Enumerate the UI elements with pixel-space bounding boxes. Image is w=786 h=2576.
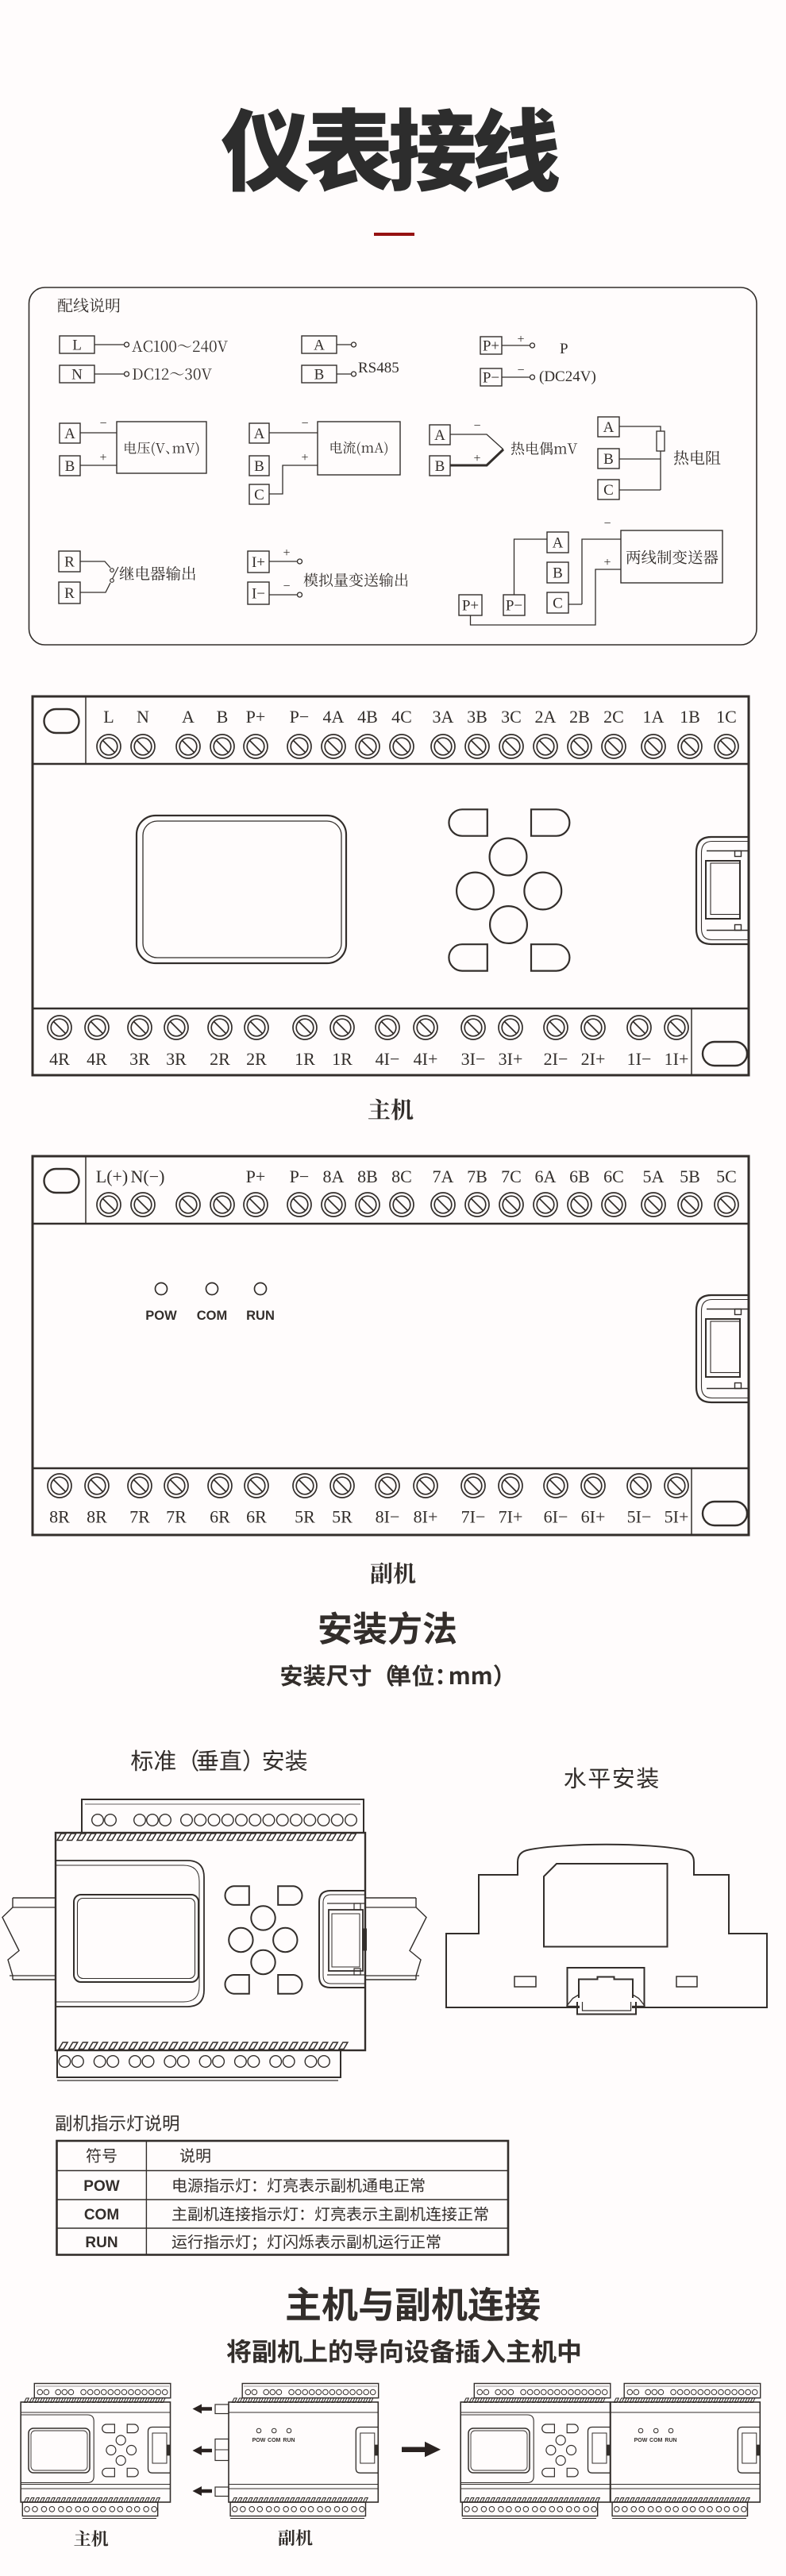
svg-text:A: A (434, 427, 445, 444)
svg-text:C: C (553, 596, 563, 612)
svg-text:7I−: 7I− (461, 1507, 486, 1527)
svg-text:2R: 2R (210, 1049, 230, 1069)
svg-text:COM: COM (268, 2438, 281, 2443)
svg-text:6C: 6C (603, 1167, 624, 1186)
svg-text:2C: 2C (603, 707, 624, 727)
svg-text:RUN: RUN (85, 2235, 118, 2251)
svg-text:+: + (283, 546, 290, 560)
svg-text:8A: 8A (323, 1167, 345, 1186)
svg-text:B: B (65, 458, 75, 475)
svg-text:+: + (99, 451, 106, 465)
svg-text:B: B (603, 451, 614, 468)
svg-text:(DC24V): (DC24V) (539, 368, 596, 385)
svg-text:4B: 4B (357, 707, 378, 727)
svg-text:C: C (254, 487, 264, 503)
svg-text:A: A (254, 426, 265, 442)
svg-text:P−: P− (506, 598, 522, 615)
svg-text:4R: 4R (87, 1049, 107, 1069)
svg-text:5R: 5R (332, 1507, 353, 1527)
svg-text:4C: 4C (391, 707, 412, 727)
svg-text:A: A (603, 419, 615, 436)
svg-text:A: A (182, 707, 195, 727)
svg-text:2I−: 2I− (544, 1049, 568, 1069)
svg-text:I−: I− (252, 586, 265, 603)
svg-text:3B: 3B (467, 707, 487, 727)
svg-text:POW: POW (83, 2178, 119, 2195)
svg-text:1A: 1A (643, 707, 665, 727)
svg-text:B: B (553, 565, 563, 582)
svg-text:−: − (99, 417, 106, 430)
svg-text:1I+: 1I+ (665, 1049, 689, 1069)
svg-text:−: − (517, 364, 524, 377)
svg-text:+: + (603, 556, 611, 569)
svg-text:3R: 3R (166, 1049, 187, 1069)
svg-text:6B: 6B (569, 1167, 590, 1186)
svg-text:5B: 5B (680, 1167, 700, 1186)
svg-text:5R: 5R (295, 1507, 315, 1527)
svg-text:5I+: 5I+ (665, 1507, 689, 1527)
svg-text:4I−: 4I− (376, 1049, 400, 1069)
svg-text:−: − (301, 417, 308, 430)
svg-text:P+: P+ (462, 598, 479, 615)
svg-text:7C: 7C (501, 1167, 522, 1186)
svg-text:2R: 2R (246, 1049, 267, 1069)
svg-text:+: + (517, 333, 524, 346)
svg-text:C: C (603, 482, 614, 499)
svg-text:RUN: RUN (665, 2438, 676, 2443)
svg-text:−: − (603, 517, 611, 530)
svg-text:P+: P+ (483, 338, 499, 355)
svg-text:P: P (560, 341, 568, 357)
svg-text:I+: I+ (252, 554, 265, 571)
svg-text:−: − (283, 580, 290, 593)
svg-text:L(+): L(+) (96, 1167, 129, 1186)
svg-text:+: + (473, 452, 480, 465)
svg-text:L: L (103, 707, 114, 727)
svg-text:1R: 1R (295, 1049, 315, 1069)
svg-text:8I+: 8I+ (414, 1507, 438, 1527)
svg-text:6R: 6R (210, 1507, 230, 1527)
svg-text:4I+: 4I+ (414, 1049, 438, 1069)
svg-text:1R: 1R (332, 1049, 353, 1069)
svg-text:R: R (64, 585, 75, 602)
svg-text:3I−: 3I− (461, 1049, 486, 1069)
svg-text:7B: 7B (467, 1167, 487, 1186)
svg-text:P−: P− (483, 370, 499, 387)
svg-text:−: − (473, 419, 480, 433)
svg-text:8B: 8B (357, 1167, 378, 1186)
svg-text:N(−): N(−) (131, 1167, 165, 1186)
svg-text:A: A (64, 426, 75, 442)
svg-text:6R: 6R (246, 1507, 267, 1527)
svg-text:P−: P− (290, 707, 310, 727)
svg-text:COM: COM (649, 2438, 663, 2443)
svg-text:B: B (254, 458, 264, 475)
svg-text:6I+: 6I+ (581, 1507, 606, 1527)
svg-text:B: B (217, 707, 229, 727)
svg-text:5I−: 5I− (627, 1507, 652, 1527)
svg-text:B: B (314, 367, 325, 384)
svg-text:P+: P+ (246, 707, 266, 727)
svg-text:RUN: RUN (283, 2438, 295, 2443)
svg-text:COM: COM (84, 2207, 119, 2223)
svg-text:7R: 7R (129, 1507, 150, 1527)
svg-text:5C: 5C (716, 1167, 737, 1186)
svg-text:4A: 4A (323, 707, 345, 727)
svg-text:RS485: RS485 (358, 360, 399, 376)
svg-text:P−: P− (290, 1167, 310, 1186)
svg-text:6A: 6A (535, 1167, 557, 1186)
svg-text:P+: P+ (246, 1167, 266, 1186)
svg-text:RUN: RUN (246, 1309, 275, 1323)
svg-text:3R: 3R (129, 1049, 150, 1069)
svg-text:3A: 3A (433, 707, 454, 727)
svg-text:8I−: 8I− (376, 1507, 400, 1527)
svg-text:3C: 3C (501, 707, 522, 727)
svg-text:+: + (301, 451, 308, 465)
svg-text:POW: POW (634, 2438, 648, 2443)
svg-text:4R: 4R (49, 1049, 70, 1069)
svg-text:A: A (553, 535, 564, 552)
svg-text:1I−: 1I− (627, 1049, 652, 1069)
svg-text:8R: 8R (49, 1507, 70, 1527)
svg-text:POW: POW (145, 1309, 177, 1323)
svg-text:N: N (137, 707, 149, 727)
svg-text:5A: 5A (643, 1167, 665, 1186)
svg-text:2B: 2B (569, 707, 590, 727)
svg-text:8C: 8C (391, 1167, 412, 1186)
svg-text:POW: POW (252, 2438, 266, 2443)
svg-text:L: L (72, 337, 82, 354)
svg-text:7A: 7A (433, 1167, 454, 1186)
svg-text:1B: 1B (680, 707, 700, 727)
svg-text:COM: COM (197, 1309, 228, 1323)
svg-text:2A: 2A (535, 707, 557, 727)
svg-text:R: R (64, 554, 75, 571)
svg-text:6I−: 6I− (544, 1507, 568, 1527)
svg-text:7R: 7R (166, 1507, 187, 1527)
svg-text:3I+: 3I+ (499, 1049, 523, 1069)
svg-text:7I+: 7I+ (499, 1507, 523, 1527)
svg-text:8R: 8R (87, 1507, 107, 1527)
svg-text:B: B (435, 458, 445, 475)
svg-text:1C: 1C (716, 707, 737, 727)
svg-text:N: N (71, 367, 83, 384)
svg-text:2I+: 2I+ (581, 1049, 606, 1069)
svg-text:A: A (314, 337, 325, 354)
